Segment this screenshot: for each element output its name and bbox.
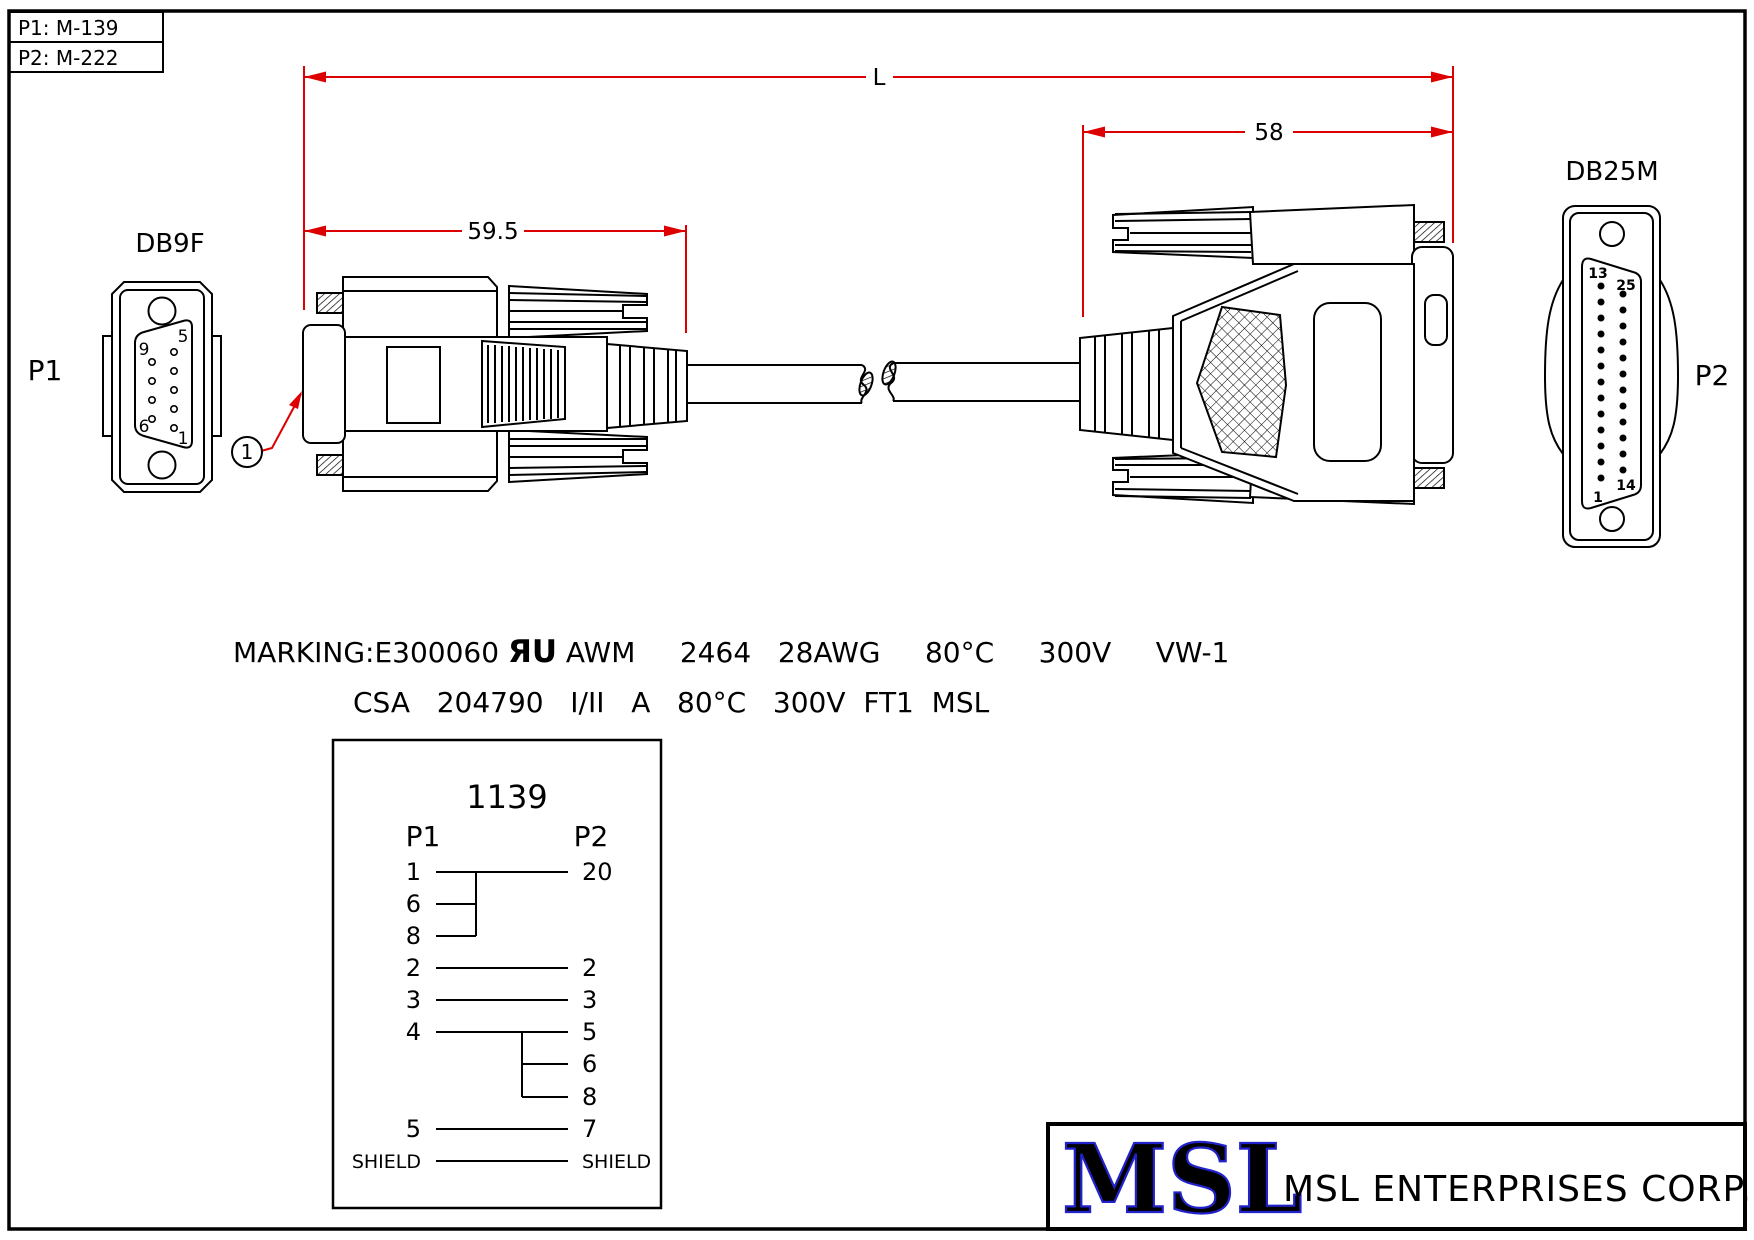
right-upper-fins (1113, 207, 1253, 258)
left-dsub-shell (303, 325, 345, 443)
db9f-pin-6: 6 (139, 417, 150, 437)
db9f-flange-right (212, 336, 221, 436)
db25m-designator: P2 (1695, 359, 1730, 392)
wiring-p1-5: 5 (406, 1115, 421, 1143)
right-thumbscrew-bottom (1414, 468, 1444, 488)
left-lower-fins (509, 430, 647, 482)
left-thumbscrew-top (317, 293, 343, 313)
db25m-bulge-right (1660, 280, 1678, 454)
db9f-flange-left (103, 336, 112, 436)
wiring-p1-8: 8 (406, 922, 421, 950)
left-strain-relief (607, 344, 687, 428)
dim-59-5-label: 59.5 (467, 219, 518, 245)
wiring-p1-2: 2 (406, 954, 421, 982)
balloon-number: 1 (241, 440, 254, 464)
wiring-p2-20: 20 (582, 858, 613, 886)
db25m-pin-14: 14 (1616, 478, 1636, 494)
wiring-p1-3: 3 (406, 986, 421, 1014)
wiring-p2-8: 8 (582, 1083, 597, 1111)
balloon-callout: 1 (232, 391, 302, 467)
ul-recognized-mark: ЯU (508, 634, 557, 670)
left-rib-grip (482, 341, 565, 427)
balloon-arrowhead (289, 391, 302, 409)
wiring-header-p2: P2 (574, 820, 609, 853)
db9f-title: DB9F (135, 229, 204, 259)
drawing-page: P1: M-139 P2: M-222 L 58 59.5 (0, 0, 1754, 1240)
dim-58-label: 58 (1254, 120, 1283, 146)
ref-p1-text: P1: M-139 (18, 16, 119, 40)
left-body-bottom-block (343, 431, 497, 491)
db9f-pin-1: 1 (178, 429, 189, 449)
cable (687, 360, 1080, 403)
db25m-title: DB25M (1565, 157, 1658, 187)
db9f-front-view (103, 282, 221, 492)
right-dsub-shell (1412, 247, 1453, 463)
right-rear-top-block (1250, 205, 1414, 264)
wiring-diagram: 1139 P1 P2 1 20 6 8 2 2 3 3 4 5 (333, 740, 661, 1208)
db25m-screw-hole-top (1600, 222, 1624, 246)
right-strain-relief (1080, 328, 1173, 440)
marking-prefix: MARKING:E300060 (233, 636, 508, 669)
wiring-lines (436, 872, 568, 1161)
wiring-p2-7: 7 (582, 1115, 597, 1143)
db9f-designator: P1 (28, 354, 63, 387)
left-body-top-block (343, 277, 497, 337)
db9f-pin-9: 9 (139, 340, 150, 360)
db25m-front-view (1545, 206, 1678, 547)
wiring-p1-4: 4 (406, 1018, 421, 1046)
db25m-screw-hole-bottom (1600, 507, 1624, 531)
left-thumbscrew-bottom (317, 455, 343, 475)
wiring-p2-5: 5 (582, 1018, 597, 1046)
marking-line1-rest: AWM 2464 28AWG 80°C 300V VW-1 (557, 636, 1229, 669)
right-shell-detail (1425, 295, 1447, 345)
wiring-header-p1: P1 (406, 820, 441, 853)
db25m-pin-25: 25 (1616, 278, 1635, 294)
db9f-pin-5: 5 (178, 327, 189, 347)
db25m-dsub-face (1582, 259, 1641, 509)
wiring-p1-6: 6 (406, 890, 421, 918)
left-upper-fins (509, 286, 647, 338)
marking-line-1: MARKING:E300060 ЯU AWM 2464 28AWG 80°C 3… (233, 634, 1229, 670)
wiring-p1-shield: SHIELD (352, 1151, 421, 1173)
left-mid-body (345, 337, 607, 431)
ref-p2-text: P2: M-222 (18, 46, 119, 70)
wiring-p2-3: 3 (582, 986, 597, 1014)
db9f-screw-hole-top (149, 298, 176, 325)
wiring-p1-1: 1 (406, 858, 421, 886)
wiring-p2-2: 2 (582, 954, 597, 982)
msl-logo: MSL (1062, 1124, 1303, 1235)
cable-break-left-end (857, 371, 876, 397)
wiring-p2-shield: SHIELD (582, 1151, 651, 1173)
marking-line-2: CSA 204790 I/II A 80°C 300V FT1 MSL (353, 686, 990, 719)
title-block: MSL MSL ENTERPRISES CORP. (1048, 1124, 1752, 1235)
company-name: MSL ENTERPRISES CORP. (1283, 1169, 1752, 1210)
right-thumbscrew-top (1414, 222, 1444, 242)
db25m-pin-13: 13 (1588, 266, 1607, 282)
right-molded-connector (1080, 205, 1453, 504)
db9f-screw-hole-bottom (149, 452, 176, 479)
wiring-part-number: 1139 (466, 778, 547, 816)
dim-L-label: L (873, 65, 886, 91)
db25m-bulge-left (1545, 280, 1563, 454)
drawing-border (9, 11, 1745, 1229)
right-label-plate (1314, 303, 1381, 461)
db25m-pin-1: 1 (1593, 490, 1603, 506)
wiring-p2-6: 6 (582, 1050, 597, 1078)
wiring-pin-labels: 1 20 6 8 2 2 3 3 4 5 6 8 5 7 SHIELD SHIE… (352, 858, 651, 1173)
left-molded-connector (303, 277, 687, 491)
